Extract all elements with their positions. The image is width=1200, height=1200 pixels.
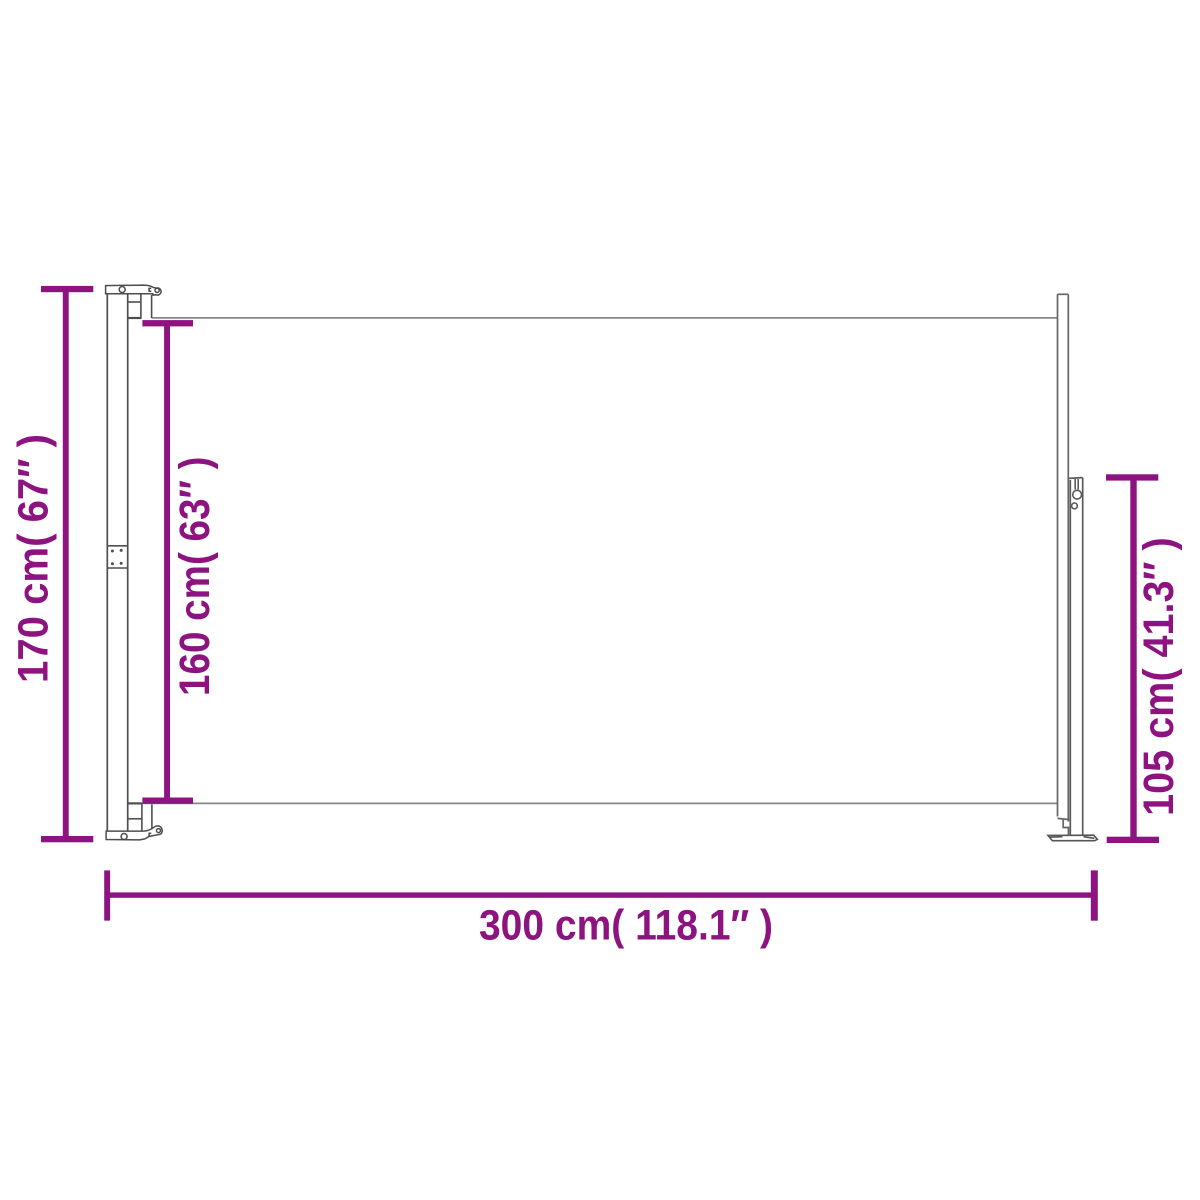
svg-text:105 cm( 41.3″ ): 105 cm( 41.3″ ) bbox=[1135, 537, 1183, 816]
svg-text:170 cm( 67″ ): 170 cm( 67″ ) bbox=[10, 434, 58, 683]
svg-text:300 cm( 118.1″ ): 300 cm( 118.1″ ) bbox=[479, 901, 773, 949]
svg-text:160 cm( 63″ ): 160 cm( 63″ ) bbox=[171, 456, 219, 696]
